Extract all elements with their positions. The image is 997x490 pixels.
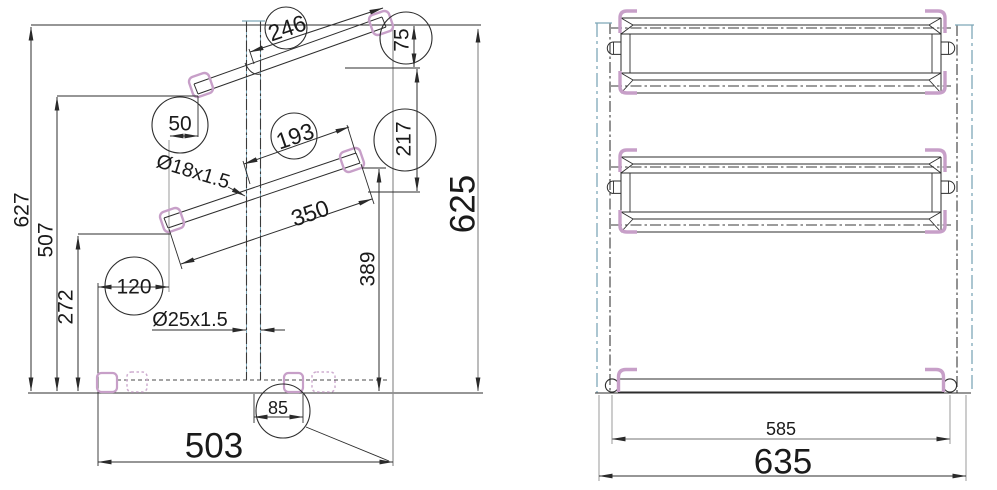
bar-end-cap [605, 379, 618, 392]
dim-label-120: 120 [116, 276, 151, 299]
callout-tube18: Ø18x1.5 [154, 150, 245, 196]
right-leg [955, 25, 974, 393]
dim-label-507: 507 [35, 222, 58, 257]
dim-label-193: 193 [273, 117, 318, 154]
dim-627: 627 [11, 27, 34, 391]
dim-line [181, 199, 372, 264]
rail-diagonal [929, 18, 941, 25]
dim-label-627: 627 [11, 192, 34, 227]
extension-line [361, 164, 374, 204]
dim-503: 503 [98, 427, 393, 466]
rail-diagonal [929, 73, 941, 80]
dim-label-217: 217 [393, 121, 416, 156]
bar-end-cap [943, 379, 956, 392]
pivot-pin [941, 181, 955, 193]
dim-585: 585 [612, 395, 950, 444]
corner-bracket [619, 370, 638, 393]
base-bracket [284, 373, 303, 392]
leader-line [306, 427, 389, 461]
dim-label-350: 350 [288, 194, 333, 231]
corner-bracket [188, 72, 215, 99]
pivot-pin [607, 181, 621, 193]
dim-246: 246 [245, 7, 383, 74]
dim-label-85: 85 [268, 398, 288, 418]
bottom-bar [595, 370, 971, 394]
dim-label-272: 272 [55, 289, 78, 324]
drawing-canvas: 627 507 272 50 120 246 [0, 0, 997, 490]
rail-diagonal [621, 212, 633, 219]
dim-label-50: 50 [168, 113, 191, 136]
base-rail [97, 372, 390, 392]
corner-bracket [925, 71, 945, 93]
rail-diagonal [929, 164, 941, 173]
front-view: 585 635 [595, 11, 974, 482]
tube25-label: Ø25x1.5 [152, 309, 228, 331]
extension-line [169, 229, 182, 269]
upper-tray [607, 11, 954, 93]
pivot-pin [941, 42, 955, 54]
callout-tube25: Ø25x1.5 [152, 309, 285, 331]
lower-tray [607, 150, 954, 232]
dim-120: 120 [98, 257, 169, 315]
rail-diagonal [929, 157, 941, 164]
rail-diagonal [621, 73, 633, 80]
left-leg [595, 23, 612, 393]
dim-label-389: 389 [357, 251, 380, 286]
base-bracket-hidden [127, 372, 147, 392]
pivot-pin [607, 42, 621, 54]
base-bracket [97, 373, 117, 392]
dim-label-75: 75 [391, 28, 414, 51]
dim-label-625: 625 [444, 175, 483, 233]
dim-75: 75 [345, 12, 432, 68]
rail-diagonal [929, 25, 941, 34]
dim-50: 50 [152, 96, 208, 153]
dim-217: 217 [368, 69, 436, 192]
dim-389: 389 [357, 168, 387, 391]
upper-tube-left-cap [194, 84, 198, 94]
side-view: 627 507 272 50 120 246 [11, 7, 484, 466]
middle-tube-left-cap [164, 218, 168, 228]
dim-label-503: 503 [185, 427, 243, 466]
middle-tube-right-cap [356, 153, 360, 163]
corner-bracket [925, 370, 944, 393]
tube18-label: Ø18x1.5 [154, 150, 233, 193]
rail-diagonal [621, 25, 633, 34]
dim-625: 625 [444, 29, 483, 391]
rail-diagonal [621, 18, 633, 25]
center-post [242, 21, 265, 380]
dim-85: 85 [254, 384, 389, 461]
rail-diagonal [621, 157, 633, 164]
rail-diagonal [929, 212, 941, 219]
dim-label-585: 585 [766, 419, 796, 439]
rail-diagonal [621, 164, 633, 173]
corner-bracket [925, 210, 945, 232]
dim-label-635: 635 [754, 443, 812, 482]
corner-bracket [159, 207, 186, 234]
base-bracket-hidden [312, 372, 335, 392]
cad-drawing-svg: 627 507 272 50 120 246 [0, 0, 997, 490]
